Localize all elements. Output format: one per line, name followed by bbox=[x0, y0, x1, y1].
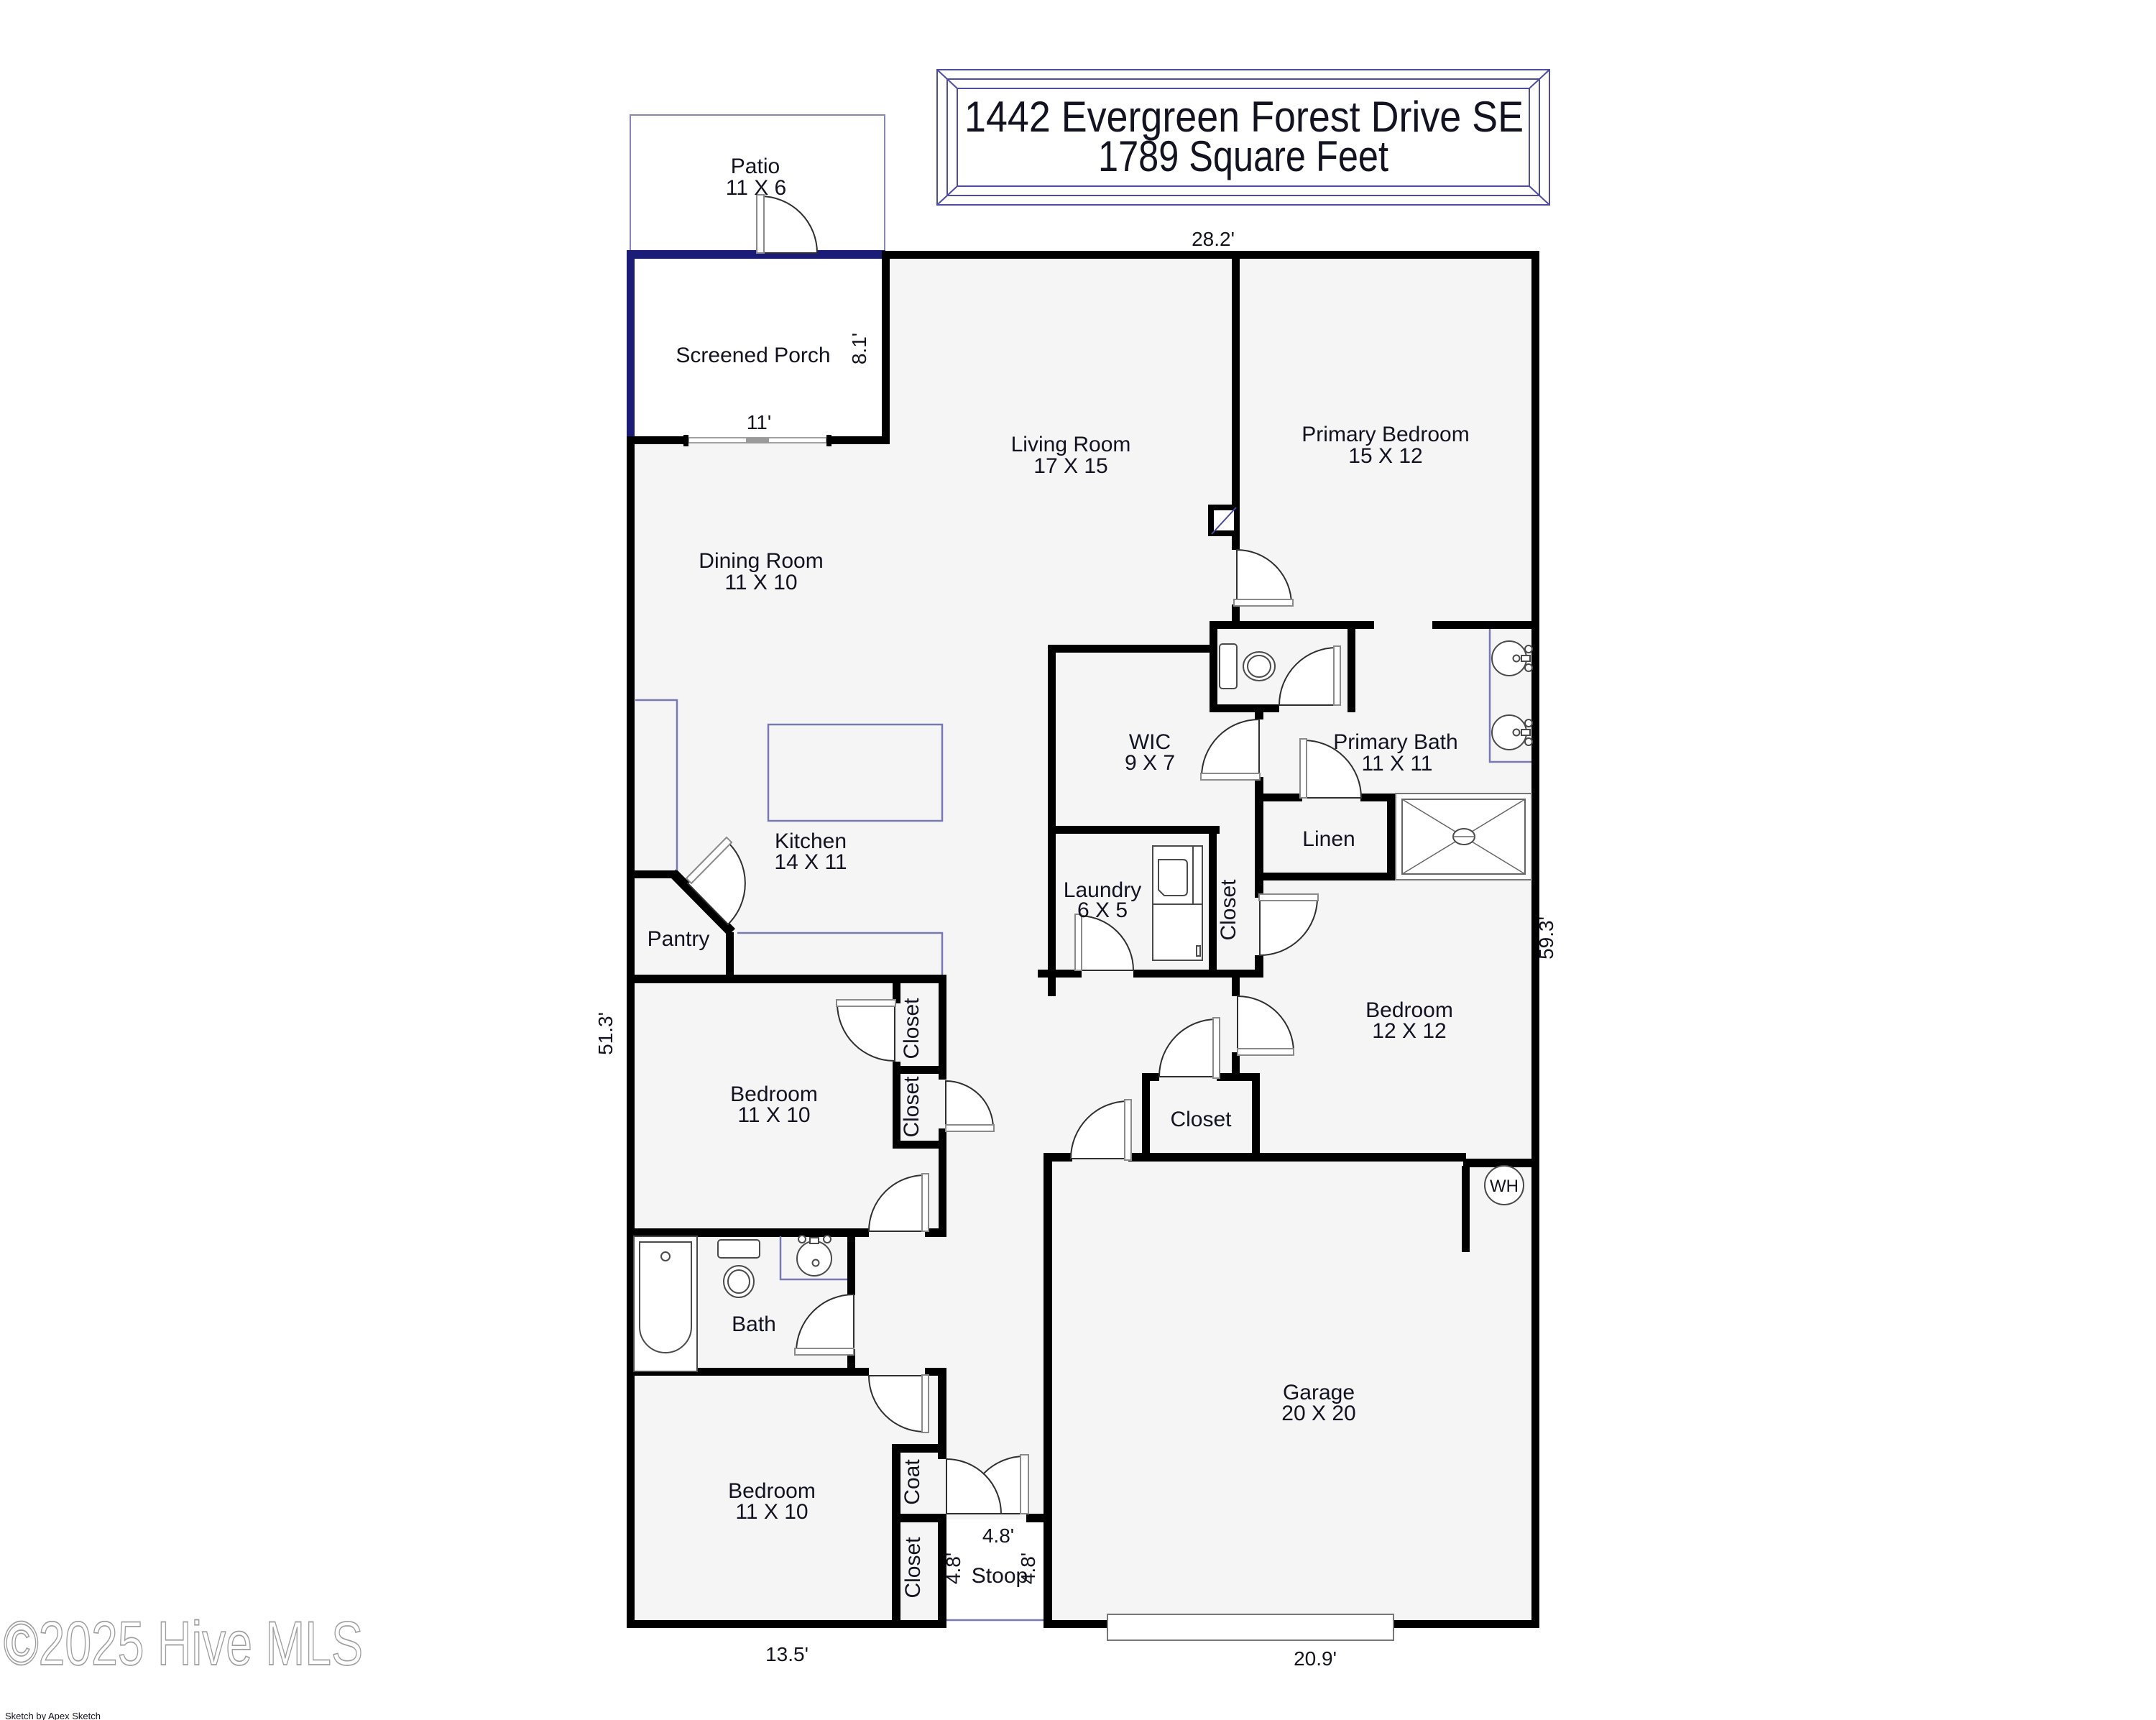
svg-text:Dining Room: Dining Room bbox=[699, 549, 823, 573]
svg-text:15 X 12: 15 X 12 bbox=[1348, 444, 1422, 468]
svg-text:4.8': 4.8' bbox=[942, 1553, 964, 1584]
svg-text:Patio: Patio bbox=[731, 155, 780, 178]
svg-text:Closet: Closet bbox=[1170, 1108, 1232, 1131]
svg-text:Stoop: Stoop bbox=[972, 1564, 1028, 1588]
svg-text:20.9': 20.9' bbox=[1294, 1647, 1337, 1670]
svg-text:13.5': 13.5' bbox=[765, 1643, 808, 1665]
svg-text:©2025 Hive MLS: ©2025 Hive MLS bbox=[4, 1609, 363, 1678]
svg-text:17 X 15: 17 X 15 bbox=[1033, 454, 1107, 478]
svg-text:11 X 11: 11 X 11 bbox=[1362, 752, 1433, 776]
svg-text:1789 Square Feet: 1789 Square Feet bbox=[1098, 132, 1388, 180]
svg-text:WH: WH bbox=[1490, 1177, 1519, 1196]
svg-text:6 X 5: 6 X 5 bbox=[1077, 898, 1128, 922]
svg-text:Coat: Coat bbox=[900, 1459, 924, 1505]
svg-text:4.8': 4.8' bbox=[982, 1524, 1014, 1547]
svg-text:Screened Porch: Screened Porch bbox=[676, 344, 830, 367]
svg-text:20 X 20: 20 X 20 bbox=[1281, 1402, 1355, 1425]
svg-text:Closet: Closet bbox=[900, 998, 923, 1059]
svg-text:28.2': 28.2' bbox=[1192, 228, 1235, 250]
svg-text:Pantry: Pantry bbox=[648, 927, 710, 951]
svg-text:59.3': 59.3' bbox=[1535, 916, 1557, 960]
svg-text:Closet: Closet bbox=[901, 1537, 925, 1599]
svg-text:11 X 10: 11 X 10 bbox=[724, 571, 797, 594]
svg-text:Primary Bedroom: Primary Bedroom bbox=[1302, 423, 1469, 446]
svg-text:14 X 11: 14 X 11 bbox=[774, 850, 847, 874]
svg-text:11': 11' bbox=[747, 411, 771, 433]
svg-text:11 X 10: 11 X 10 bbox=[735, 1500, 808, 1524]
svg-text:12 X 12: 12 X 12 bbox=[1372, 1019, 1446, 1043]
svg-text:Linen: Linen bbox=[1302, 827, 1355, 851]
svg-text:Bath: Bath bbox=[732, 1312, 776, 1336]
svg-text:9 X 7: 9 X 7 bbox=[1125, 751, 1175, 775]
svg-text:11 X 6: 11 X 6 bbox=[726, 176, 787, 200]
svg-text:Primary Bath: Primary Bath bbox=[1333, 730, 1457, 754]
svg-text:8.1': 8.1' bbox=[848, 333, 870, 364]
svg-text:Closet: Closet bbox=[1217, 879, 1240, 941]
svg-text:Living Room: Living Room bbox=[1011, 433, 1131, 456]
svg-text:Sketch by Apex Sketch: Sketch by Apex Sketch bbox=[5, 1711, 101, 1720]
svg-text:51.3': 51.3' bbox=[594, 1012, 617, 1055]
svg-text:11 X 10: 11 X 10 bbox=[737, 1103, 810, 1127]
svg-text:Closet: Closet bbox=[900, 1076, 923, 1138]
